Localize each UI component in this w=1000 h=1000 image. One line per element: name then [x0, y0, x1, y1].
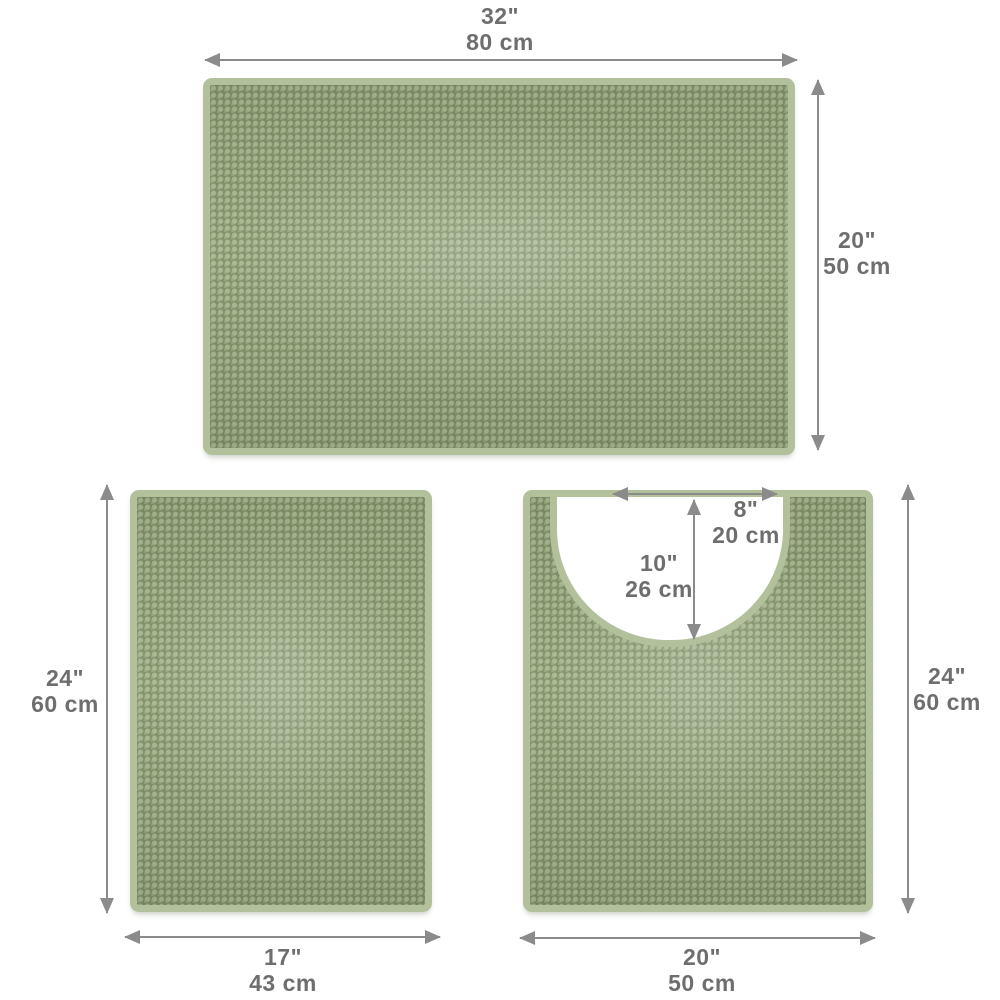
contour-mat-width-cm: 50 cm [602, 970, 802, 996]
large-mat-width-arrow [205, 59, 797, 61]
small-mat-height-inches: 24" [13, 665, 117, 691]
cutout-depth-cm: 26 cm [609, 576, 709, 602]
small-mat-width-cm: 43 cm [183, 970, 383, 996]
cutout-width-arrow [613, 493, 777, 495]
small-mat-width-arrow [125, 936, 440, 938]
large-mat-width-label: 32" 80 cm [390, 3, 610, 55]
contour-mat-height-inches: 24" [897, 663, 997, 689]
contour-mat-height-label: 24" 60 cm [897, 663, 997, 715]
cutout-depth-label: 10" 26 cm [609, 550, 709, 602]
contour-mat-width-arrow [520, 937, 875, 939]
small-mat-height-label: 24" 60 cm [13, 665, 117, 717]
small-mat-height-cm: 60 cm [13, 691, 117, 717]
cutout-width-label: 8" 20 cm [696, 496, 796, 548]
contour-mat-height-cm: 60 cm [897, 689, 997, 715]
large-mat-width-inches: 32" [390, 3, 610, 29]
small-mat-width-label: 17" 43 cm [183, 944, 383, 996]
large-mat-height-label: 20" 50 cm [810, 227, 904, 279]
large-mat-width-cm: 80 cm [390, 29, 610, 55]
cutout-depth-inches: 10" [609, 550, 709, 576]
chenille-texture [210, 85, 788, 448]
large-mat-height-inches: 20" [810, 227, 904, 253]
chenille-texture [137, 497, 425, 905]
cutout-width-cm: 20 cm [696, 522, 796, 548]
small-bath-mat [130, 490, 432, 912]
large-mat-height-cm: 50 cm [810, 253, 904, 279]
large-bath-mat [203, 78, 795, 455]
contour-mat-width-inches: 20" [602, 944, 802, 970]
product-dimension-diagram: 32" 80 cm 20" 50 cm 24" 60 cm 17" 43 cm … [0, 0, 1000, 1000]
small-mat-width-inches: 17" [183, 944, 383, 970]
cutout-width-inches: 8" [696, 496, 796, 522]
contour-mat-width-label: 20" 50 cm [602, 944, 802, 996]
